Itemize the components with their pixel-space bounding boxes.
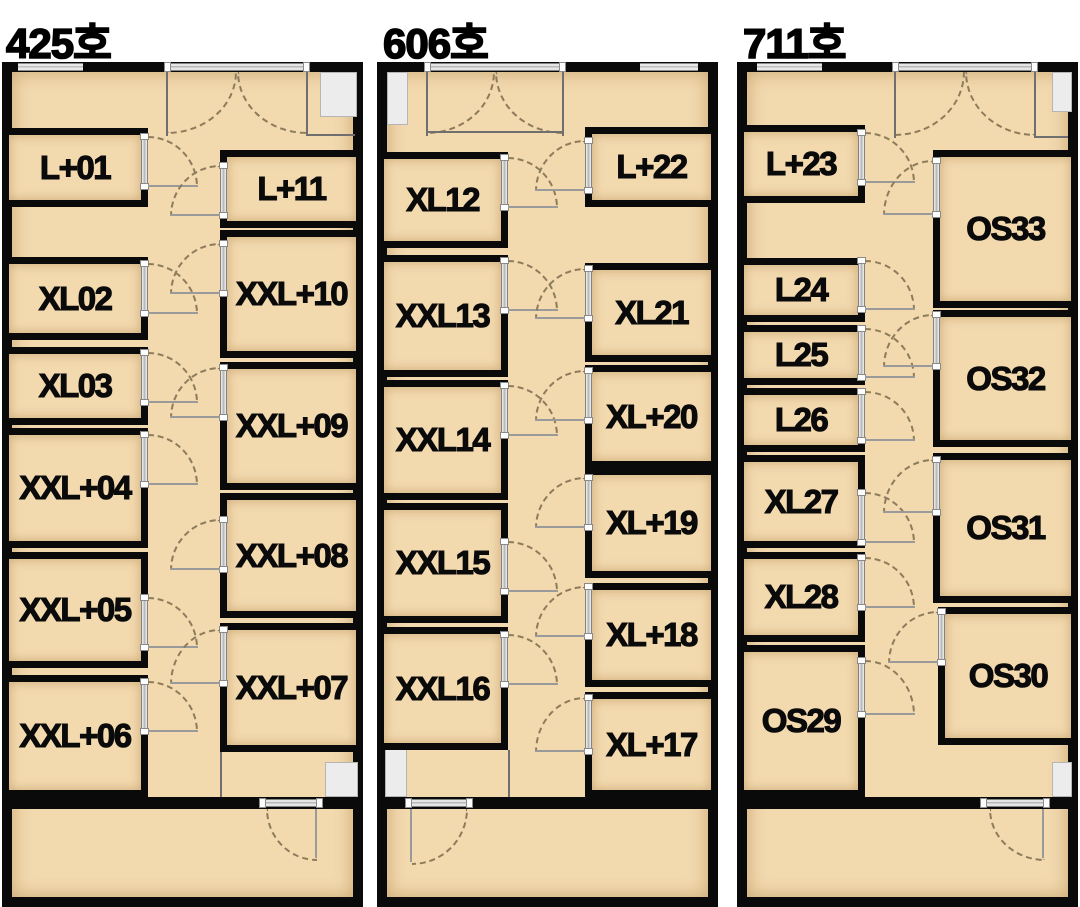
entry-jamb-line <box>894 72 896 138</box>
room-floor: XXL14 <box>384 387 501 493</box>
entry-jamb-line <box>1034 72 1036 138</box>
room-label: OS33 <box>966 210 1044 248</box>
door-sill <box>220 519 227 570</box>
entry-jamb-line <box>166 72 168 136</box>
room-label: XXL16 <box>396 670 489 708</box>
door-leaf <box>535 635 585 637</box>
door-leaf <box>865 541 915 543</box>
room-floor: L25 <box>744 332 858 378</box>
room-xxl+05: XXL+05 <box>2 552 148 668</box>
room-label: L26 <box>775 401 827 439</box>
room-l26: L26 <box>737 388 865 452</box>
room-os30: OS30 <box>938 607 1078 745</box>
door-leaf <box>535 189 585 191</box>
window <box>18 63 83 71</box>
door-sill <box>858 260 865 310</box>
room-floor: XXL15 <box>384 510 501 616</box>
door-leaf <box>148 312 198 314</box>
room-label: XL21 <box>615 294 688 332</box>
room-floor: OS33 <box>940 157 1071 301</box>
door-sill <box>141 597 148 648</box>
door-sill <box>858 132 865 183</box>
room-floor: XL02 <box>9 264 141 333</box>
hall-door-sill <box>262 799 320 807</box>
room-label: L24 <box>775 271 827 309</box>
fixture-block <box>385 748 407 797</box>
room-label: XXL14 <box>396 421 489 459</box>
window <box>757 63 822 71</box>
door-sill <box>501 634 508 685</box>
door-sill <box>858 557 865 608</box>
unit-711-title: 711호 <box>743 10 993 60</box>
room-l+11: L+11 <box>220 150 363 228</box>
room-floor: OS29 <box>744 652 858 790</box>
door-sill <box>141 681 148 732</box>
hall-door-sill <box>983 799 1047 807</box>
corridor-line <box>508 750 510 797</box>
room-label: L+11 <box>257 170 325 208</box>
hall-door-leaf <box>410 809 412 862</box>
room-xl+17: XL+17 <box>585 692 718 797</box>
door-leaf <box>883 365 933 367</box>
door-sill <box>141 136 148 187</box>
room-label: XL+18 <box>606 616 697 654</box>
room-xl28: XL28 <box>737 552 865 642</box>
floorplan-canvas: 425호L+01XL02XL03XXL+04XXL+05XXL+06L+11XX… <box>0 0 1080 907</box>
door-leaf <box>508 683 558 685</box>
door-sill <box>585 268 592 319</box>
room-label: OS32 <box>966 360 1044 398</box>
room-label: XXL+08 <box>236 537 347 575</box>
door-leaf <box>508 434 558 436</box>
door-leaf <box>170 416 220 418</box>
room-xxl+07: XXL+07 <box>220 623 363 752</box>
room-l25: L25 <box>737 325 865 385</box>
room-floor: XXL+05 <box>9 559 141 661</box>
room-xl12: XL12 <box>377 152 508 248</box>
room-floor: XXL+10 <box>227 237 356 351</box>
unit-425-title: 425호 <box>6 10 256 60</box>
room-floor: XL+18 <box>592 590 711 680</box>
door-sill <box>933 459 940 513</box>
room-floor: XXL+06 <box>9 682 141 790</box>
room-label: XL28 <box>765 578 838 616</box>
room-floor: XL+20 <box>592 372 711 461</box>
vestibule-line <box>307 134 355 136</box>
door-sill <box>585 140 592 191</box>
room-xxl+10: XXL+10 <box>220 230 363 358</box>
hall-door-leaf <box>1042 809 1044 858</box>
vestibule-line <box>427 131 563 133</box>
room-xxl+04: XXL+04 <box>2 428 148 548</box>
entry-jamb-line <box>562 72 564 136</box>
door-sill <box>858 391 865 441</box>
door-sill <box>585 477 592 528</box>
door-leaf <box>148 730 198 732</box>
room-l+01: L+01 <box>2 128 148 207</box>
room-xxl15: XXL15 <box>377 503 508 623</box>
room-xxl13: XXL13 <box>377 255 508 377</box>
room-xl27: XL27 <box>737 455 865 548</box>
fixture-block <box>325 762 358 797</box>
room-label: L+23 <box>766 145 836 183</box>
room-label: XL+20 <box>606 398 697 436</box>
room-label: L+01 <box>40 149 110 187</box>
room-os31: OS31 <box>933 453 1078 603</box>
door-leaf <box>170 568 220 570</box>
room-floor: L+11 <box>227 157 356 221</box>
room-xl+18: XL+18 <box>585 583 718 687</box>
room-xl03: XL03 <box>2 347 148 425</box>
room-floor: XXL+07 <box>227 630 356 745</box>
fixture-block <box>1052 72 1072 112</box>
room-floor: XXL+08 <box>227 500 356 611</box>
room-floor: OS30 <box>945 614 1071 738</box>
door-sill <box>220 629 227 684</box>
fixture-block <box>1052 762 1072 797</box>
door-sill <box>858 328 865 378</box>
room-os29: OS29 <box>737 645 865 797</box>
door-sill <box>501 541 508 592</box>
door-leaf <box>170 682 220 684</box>
door-sill <box>220 165 227 216</box>
room-label: OS29 <box>762 702 840 740</box>
room-label: XL+19 <box>606 504 697 542</box>
door-leaf <box>883 511 933 513</box>
entry-door-sill <box>167 63 307 71</box>
room-label: XL+17 <box>606 726 697 764</box>
room-floor: XL21 <box>592 270 711 355</box>
room-floor: L24 <box>744 265 858 315</box>
room-xl02: XL02 <box>2 257 148 340</box>
room-l+22: L+22 <box>585 127 718 207</box>
room-os32: OS32 <box>933 310 1078 447</box>
door-leaf <box>865 308 915 310</box>
room-xxl+08: XXL+08 <box>220 493 363 618</box>
room-label: XXL15 <box>396 544 489 582</box>
room-floor: XL27 <box>744 462 858 541</box>
room-floor: XL03 <box>9 354 141 418</box>
room-floor: L26 <box>744 395 858 445</box>
vestibule-line <box>1035 136 1068 138</box>
room-xxl+06: XXL+06 <box>2 675 148 797</box>
door-leaf <box>170 292 220 294</box>
room-xl+20: XL+20 <box>585 365 718 468</box>
room-os33: OS33 <box>933 150 1078 308</box>
door-leaf <box>148 483 198 485</box>
room-floor: XXL+09 <box>227 369 356 483</box>
room-label: XXL+09 <box>236 407 347 445</box>
room-label: XL27 <box>765 483 838 521</box>
room-label: XL12 <box>406 181 479 219</box>
room-label: L25 <box>775 336 827 374</box>
room-xl21: XL21 <box>585 263 718 362</box>
door-leaf <box>888 661 938 663</box>
room-floor: L+23 <box>744 132 858 196</box>
door-sill <box>938 611 945 663</box>
room-floor: XL12 <box>384 159 501 241</box>
room-floor: OS32 <box>940 317 1071 440</box>
room-label: OS31 <box>966 509 1044 547</box>
door-sill <box>585 586 592 637</box>
room-floor: L+22 <box>592 134 711 200</box>
door-sill <box>933 160 940 215</box>
door-leaf <box>883 213 933 215</box>
door-sill <box>220 367 227 418</box>
door-leaf <box>535 419 585 421</box>
door-leaf <box>865 376 915 378</box>
room-label: XL03 <box>39 367 112 405</box>
room-l+23: L+23 <box>737 125 865 203</box>
hall-door-sill <box>408 799 470 807</box>
room-label: XXL+06 <box>19 717 130 755</box>
door-sill <box>220 243 227 294</box>
entry-jamb-line <box>426 72 428 136</box>
room-label: XXL+04 <box>19 469 130 507</box>
door-sill <box>501 260 508 311</box>
hall-door-leaf <box>315 809 317 858</box>
room-floor: OS31 <box>940 460 1071 596</box>
door-leaf <box>865 439 915 441</box>
entry-door-sill <box>895 63 1035 71</box>
room-floor: XXL+04 <box>9 435 141 541</box>
room-floor: XL+19 <box>592 475 711 571</box>
window <box>640 63 698 71</box>
entry-door-sill <box>427 63 563 71</box>
room-label: XXL+05 <box>19 591 130 629</box>
door-leaf <box>508 590 558 592</box>
room-floor: XXL16 <box>384 634 501 743</box>
door-leaf <box>508 206 558 208</box>
room-floor: XL+17 <box>592 699 711 790</box>
door-leaf <box>535 750 585 752</box>
entry-jamb-line <box>306 72 308 136</box>
door-sill <box>141 352 148 403</box>
door-leaf <box>865 606 915 608</box>
door-sill <box>858 492 865 543</box>
room-label: XL02 <box>39 280 112 318</box>
room-floor: XL28 <box>744 559 858 635</box>
door-leaf <box>535 317 585 319</box>
corridor-line <box>220 752 222 797</box>
room-label: XXL13 <box>396 297 489 335</box>
room-label: XXL+07 <box>236 669 347 707</box>
door-sill <box>501 157 508 208</box>
room-floor: XXL13 <box>384 262 501 370</box>
room-xxl14: XXL14 <box>377 380 508 500</box>
door-sill <box>141 434 148 485</box>
door-sill <box>141 263 148 314</box>
room-l24: L24 <box>737 258 865 322</box>
door-sill <box>933 314 940 367</box>
door-leaf <box>170 214 220 216</box>
room-label: OS30 <box>969 657 1047 695</box>
door-leaf <box>535 526 585 528</box>
room-xxl+09: XXL+09 <box>220 362 363 490</box>
room-label: L+22 <box>616 148 686 186</box>
door-sill <box>585 370 592 421</box>
room-label: XXL+10 <box>236 275 347 313</box>
door-leaf <box>865 713 915 715</box>
door-sill <box>501 385 508 436</box>
room-floor: L+01 <box>9 135 141 200</box>
door-sill <box>585 697 592 752</box>
fixture-block <box>387 72 408 125</box>
door-sill <box>858 660 865 715</box>
unit-606-title: 606호 <box>383 10 633 60</box>
room-xl+19: XL+19 <box>585 468 718 578</box>
room-xxl16: XXL16 <box>377 627 508 750</box>
fixture-block <box>320 72 357 117</box>
